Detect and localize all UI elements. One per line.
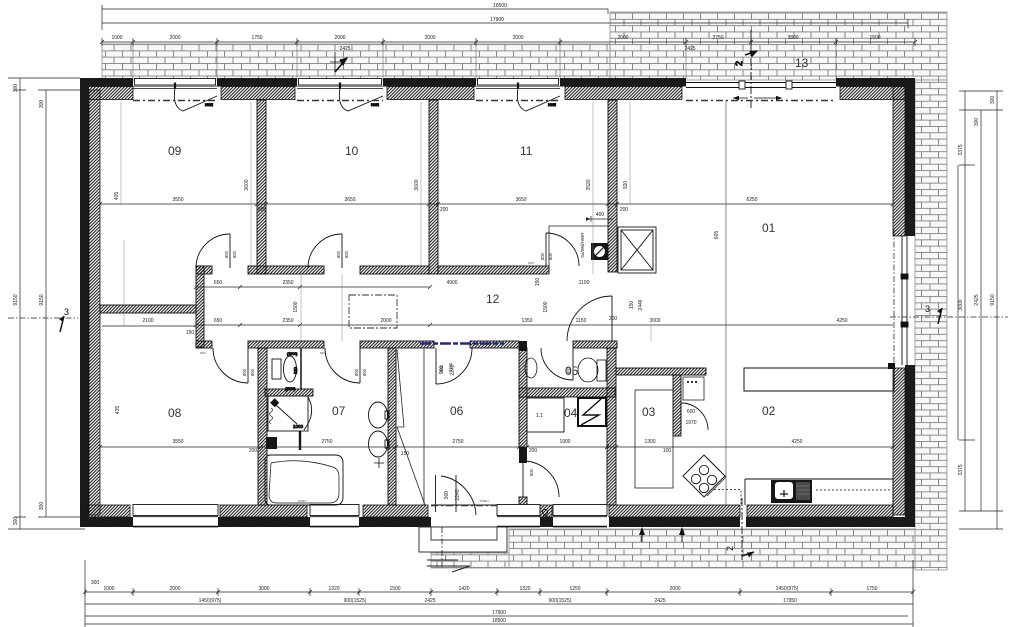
- svg-text:100: 100: [663, 448, 672, 454]
- svg-text:200: 200: [609, 316, 618, 322]
- svg-text:13: 13: [795, 56, 809, 70]
- svg-text:1750: 1750: [866, 586, 877, 592]
- svg-text:NWE: NWE: [205, 103, 214, 107]
- svg-text:150: 150: [629, 301, 635, 310]
- svg-text:1150: 1150: [576, 318, 587, 324]
- svg-text:1750: 1750: [251, 35, 262, 41]
- svg-text:2425: 2425: [424, 598, 435, 604]
- svg-text:900: 900: [439, 366, 445, 375]
- svg-text:3650: 3650: [515, 197, 526, 203]
- svg-text:NWE: NWE: [371, 103, 380, 107]
- svg-text:06: 06: [450, 404, 464, 418]
- svg-text:1320: 1320: [328, 586, 339, 592]
- svg-text:800: 800: [354, 368, 359, 376]
- svg-text:605: 605: [714, 231, 720, 240]
- svg-text:1000: 1000: [103, 586, 114, 592]
- svg-text:PURU: PURU: [298, 499, 307, 503]
- svg-text:800: 800: [250, 368, 255, 376]
- svg-text:3550: 3550: [172, 439, 183, 445]
- svg-text:300: 300: [91, 580, 100, 586]
- svg-text:3600: 3600: [244, 179, 250, 190]
- svg-text:300: 300: [990, 96, 996, 105]
- svg-text:3: 3: [925, 304, 930, 314]
- svg-text:(1500): (1500): [285, 387, 295, 391]
- svg-text:1300: 1300: [644, 439, 655, 445]
- svg-text:920: 920: [293, 366, 298, 374]
- svg-text:150: 150: [186, 330, 195, 336]
- svg-text:3000: 3000: [649, 318, 660, 324]
- svg-text:08: 08: [168, 406, 182, 420]
- svg-text:2240: 2240: [450, 364, 456, 375]
- svg-text:300: 300: [13, 84, 19, 93]
- svg-text:435: 435: [115, 406, 121, 415]
- svg-text:3800: 3800: [787, 35, 798, 41]
- svg-text:2000: 2000: [669, 586, 680, 592]
- svg-text:300: 300: [39, 100, 45, 109]
- svg-text:18500: 18500: [493, 3, 507, 9]
- svg-text:800: 800: [529, 468, 534, 476]
- svg-text:2750: 2750: [452, 439, 463, 445]
- svg-text:200: 200: [258, 207, 267, 213]
- svg-text:150: 150: [535, 278, 541, 287]
- svg-text:2: 2: [725, 546, 735, 551]
- svg-text:1420: 1420: [458, 586, 469, 592]
- svg-text:NPU: NPU: [528, 261, 534, 265]
- svg-text:1000: 1000: [111, 35, 122, 41]
- svg-text:800: 800: [540, 252, 545, 260]
- svg-text:04: 04: [564, 406, 578, 420]
- svg-text:1100: 1100: [579, 280, 590, 286]
- svg-text:1970: 1970: [685, 420, 696, 426]
- svg-text:10: 10: [345, 144, 359, 158]
- svg-text:2425: 2425: [974, 294, 980, 305]
- svg-text:18500: 18500: [492, 618, 506, 624]
- svg-text:1500: 1500: [869, 35, 880, 41]
- svg-text:800: 800: [548, 252, 553, 260]
- svg-text:200: 200: [249, 448, 258, 454]
- svg-text:900: 900: [444, 491, 450, 500]
- svg-text:3000: 3000: [958, 299, 964, 310]
- svg-text:12: 12: [486, 292, 500, 306]
- svg-text:1250: 1250: [569, 586, 580, 592]
- svg-text:300: 300: [13, 517, 19, 526]
- svg-text:05: 05: [565, 364, 579, 378]
- svg-text:300: 300: [39, 502, 45, 511]
- svg-text:4250: 4250: [791, 439, 802, 445]
- svg-text:1500: 1500: [389, 586, 400, 592]
- svg-text:800: 800: [232, 250, 237, 258]
- svg-text:800: 800: [242, 368, 247, 376]
- svg-text:2425: 2425: [654, 598, 665, 604]
- svg-text:800: 800: [362, 368, 367, 376]
- svg-text:400: 400: [596, 212, 605, 218]
- svg-text:1.1: 1.1: [536, 413, 543, 419]
- svg-text:09: 09: [168, 144, 182, 158]
- svg-text:800: 800: [336, 250, 341, 258]
- svg-text:1500: 1500: [293, 301, 299, 312]
- svg-text:3550: 3550: [172, 197, 183, 203]
- svg-text:07: 07: [332, 404, 346, 418]
- svg-text:2750: 2750: [321, 439, 332, 445]
- svg-text:800: 800: [224, 250, 229, 258]
- svg-text:NPU: NPU: [200, 351, 206, 355]
- svg-text:3: 3: [64, 307, 69, 317]
- svg-text:1320: 1320: [519, 586, 530, 592]
- svg-text:6250: 6250: [746, 197, 757, 203]
- svg-text:17900: 17900: [490, 17, 504, 23]
- svg-text:2000: 2000: [334, 35, 345, 41]
- svg-text:Sa/Wd/HWR: Sa/Wd/HWR: [580, 232, 585, 258]
- svg-text:800: 800: [344, 250, 349, 258]
- svg-text:150: 150: [401, 451, 410, 457]
- svg-text:1500: 1500: [543, 301, 549, 312]
- svg-text:9150: 9150: [990, 294, 996, 305]
- svg-text:4250: 4250: [836, 318, 847, 324]
- svg-text:300: 300: [974, 118, 980, 127]
- svg-text:2750: 2750: [712, 35, 723, 41]
- svg-text:03: 03: [642, 405, 656, 419]
- svg-text:650: 650: [214, 318, 223, 324]
- svg-text:(1500): (1500): [287, 352, 297, 356]
- svg-text:4900: 4900: [446, 280, 457, 286]
- svg-text:2425: 2425: [684, 46, 695, 52]
- svg-text:200: 200: [620, 207, 629, 213]
- svg-text:2350: 2350: [282, 280, 293, 286]
- svg-text:02: 02: [762, 404, 776, 418]
- svg-text:2000: 2000: [380, 318, 391, 324]
- svg-text:2000: 2000: [424, 35, 435, 41]
- svg-text:9150: 9150: [39, 294, 45, 305]
- svg-text:920: 920: [623, 181, 629, 190]
- svg-text:2000: 2000: [617, 35, 628, 41]
- svg-text:9150: 9150: [13, 294, 19, 305]
- svg-text:200: 200: [440, 207, 449, 213]
- svg-text:01: 01: [762, 221, 776, 235]
- svg-text:2: 2: [734, 61, 744, 66]
- svg-text:2350: 2350: [282, 318, 293, 324]
- svg-text:2000: 2000: [169, 586, 180, 592]
- svg-text:2446: 2446: [638, 299, 644, 310]
- svg-text:3520: 3520: [586, 179, 592, 190]
- svg-text:2425: 2425: [339, 46, 350, 52]
- svg-text:600: 600: [687, 409, 696, 415]
- svg-text:3375: 3375: [958, 144, 964, 155]
- svg-text:1450(975): 1450(975): [199, 598, 222, 604]
- svg-text:3600: 3600: [414, 179, 420, 190]
- svg-text:900(1525): 900(1525): [344, 598, 367, 604]
- svg-text:2000: 2000: [169, 35, 180, 41]
- svg-text:1450(975): 1450(975): [776, 586, 799, 592]
- svg-text:NWE: NWE: [548, 103, 557, 107]
- svg-text:3375: 3375: [958, 464, 964, 475]
- svg-text:PURU: PURU: [480, 499, 489, 503]
- svg-text:1000: 1000: [293, 424, 304, 429]
- svg-text:200: 200: [529, 448, 538, 454]
- svg-text:900(1525): 900(1525): [549, 598, 572, 604]
- svg-text:2000: 2000: [512, 35, 523, 41]
- svg-text:405: 405: [114, 192, 120, 201]
- svg-text:1900: 1900: [559, 439, 570, 445]
- svg-text:17950: 17950: [783, 598, 797, 604]
- svg-text:650: 650: [214, 280, 223, 286]
- svg-text:NPU: NPU: [320, 351, 326, 355]
- svg-text:1350: 1350: [521, 318, 532, 324]
- svg-text:2100: 2100: [142, 318, 153, 324]
- svg-text:3000: 3000: [258, 586, 269, 592]
- svg-text:3650: 3650: [344, 197, 355, 203]
- svg-text:2240: 2240: [455, 489, 461, 500]
- svg-text:17900: 17900: [492, 610, 506, 616]
- svg-text:11: 11: [520, 144, 533, 158]
